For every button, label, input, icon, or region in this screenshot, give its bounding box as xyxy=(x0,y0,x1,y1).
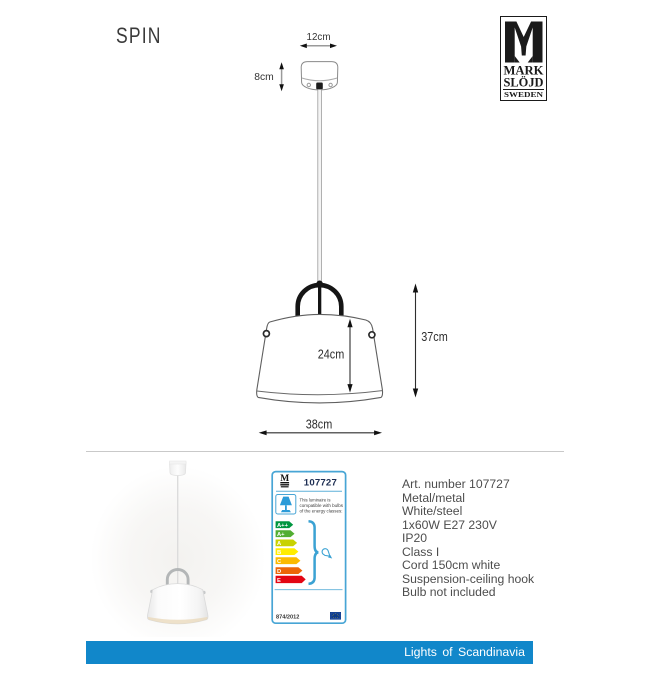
svg-text:24cm: 24cm xyxy=(318,347,345,362)
svg-text:E: E xyxy=(277,578,281,584)
svg-text:37cm: 37cm xyxy=(421,329,448,344)
svg-text:A+: A+ xyxy=(277,532,285,538)
svg-text:SLÖJD: SLÖJD xyxy=(504,76,544,90)
svg-text:of the energy classes:: of the energy classes: xyxy=(300,509,343,514)
svg-text:This luminaire is: This luminaire is xyxy=(300,498,332,503)
svg-text:D: D xyxy=(277,569,281,575)
svg-text:38cm: 38cm xyxy=(306,417,333,432)
svg-text:107727: 107727 xyxy=(304,478,337,489)
svg-text:B: B xyxy=(277,550,281,556)
svg-text:compatible with bulbs: compatible with bulbs xyxy=(300,503,344,508)
svg-text:12cm: 12cm xyxy=(307,31,331,43)
svg-text:SWEDEN: SWEDEN xyxy=(504,90,544,99)
svg-text:A++: A++ xyxy=(277,523,289,529)
svg-text:8cm: 8cm xyxy=(254,71,274,83)
svg-text:874/2012: 874/2012 xyxy=(276,615,299,621)
